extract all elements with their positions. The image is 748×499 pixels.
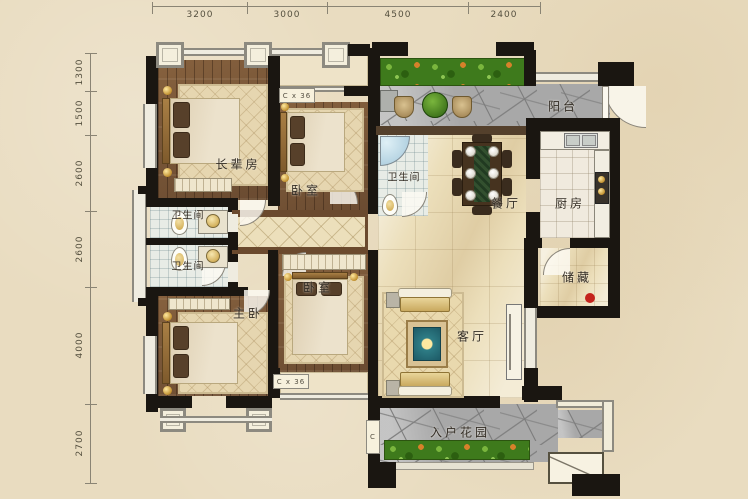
wall-segment	[572, 474, 620, 496]
dim-tick	[85, 135, 97, 136]
dim-tick	[247, 2, 248, 14]
wall-segment	[368, 250, 378, 398]
wall-segment	[368, 48, 380, 128]
room-label-storage: 储藏	[562, 269, 592, 286]
dim-label-top-4: 2400	[491, 10, 518, 20]
dim-label-left-5: 4000	[75, 332, 85, 359]
dim-tick	[85, 53, 97, 54]
room-label-elder: 长辈房	[215, 156, 260, 173]
bed-pillow	[173, 354, 189, 378]
side-shaft	[132, 190, 147, 302]
wall-segment	[148, 396, 192, 408]
wall-segment	[268, 56, 280, 206]
room-label-entry-garden: 入户花园	[430, 424, 490, 441]
bed-pillow	[173, 102, 190, 128]
room-label-balcony: 阳台	[548, 98, 578, 115]
dim-label-left-1: 1300	[75, 59, 85, 86]
wall-segment	[524, 306, 620, 318]
round-plant	[422, 92, 448, 118]
bedroom-mid-bay-window	[280, 393, 368, 400]
wall-segment	[146, 238, 232, 245]
room-label-dining: 餐厅	[491, 195, 521, 212]
room-label-bedroom-top: 卧室	[291, 182, 321, 199]
master-window	[143, 336, 157, 394]
balcony-rail	[536, 72, 602, 82]
wall-segment	[372, 42, 408, 56]
bed-headboard	[162, 98, 170, 164]
wall-segment	[268, 250, 278, 372]
coffee-table-glass	[413, 327, 441, 361]
dining-chair	[502, 178, 512, 196]
room-label-bath2: 卫生间	[172, 258, 205, 273]
planter-pot	[394, 96, 414, 118]
bed-pillow	[173, 132, 190, 158]
dim-tick	[85, 211, 97, 212]
bedside-lamp	[350, 273, 358, 281]
entry-garden-extension	[558, 410, 606, 438]
wall-segment	[598, 62, 634, 86]
dim-label-left-6: 2700	[75, 430, 85, 457]
bedside-lamp	[284, 273, 292, 281]
bath-door-gap	[228, 262, 238, 282]
bedside-lamp	[163, 386, 172, 395]
entry-garden-step	[374, 462, 534, 470]
bed-pillow	[290, 116, 305, 139]
bay-pillar	[322, 42, 350, 68]
plate	[488, 168, 499, 179]
balcony-planter	[380, 58, 526, 86]
wall-segment	[226, 396, 272, 408]
dim-tick	[327, 2, 328, 14]
wall-segment	[522, 386, 562, 400]
bedside-lamp	[163, 86, 172, 95]
sink	[206, 249, 220, 263]
dining-chair	[452, 150, 462, 168]
master-bay-window	[160, 416, 272, 423]
room-label-kitchen: 厨房	[555, 195, 585, 212]
bath3-sink	[382, 194, 398, 216]
dim-tick	[540, 2, 541, 14]
floor-plan-canvas: 3200 3000 4500 2400 1300 1500 2600 2600 …	[0, 0, 748, 499]
room-label-living: 客厅	[457, 328, 487, 345]
bay-window-tag-bottom: C x 36	[273, 374, 309, 389]
dim-tick	[85, 91, 97, 92]
bed-pillow	[290, 143, 305, 166]
room-label-bath1: 卫生间	[172, 207, 205, 222]
bedside-lamp	[281, 103, 289, 111]
dimension-line-top	[152, 6, 540, 7]
stove-burner	[598, 188, 605, 195]
room-label-master: 主卧	[233, 305, 263, 322]
sofa-back	[398, 386, 452, 396]
marker-dot	[585, 293, 595, 303]
sofa-seat	[400, 297, 450, 312]
master-closet	[168, 298, 230, 310]
dining-chair	[472, 206, 492, 215]
dim-label-left-2: 1500	[75, 100, 85, 127]
bed-pillow	[173, 326, 189, 350]
wall-segment	[608, 246, 620, 308]
kitchen-sink-basin	[566, 135, 580, 146]
tv-cabinet-line	[509, 314, 511, 370]
wall-segment	[138, 186, 156, 194]
wall-segment	[368, 462, 396, 488]
bed-headboard	[280, 112, 287, 172]
bay-window-tag-top: C x 36	[279, 88, 315, 103]
room-label-bedroom-mid: 卧室	[303, 279, 333, 296]
plate	[488, 146, 499, 157]
balcony-sill	[376, 126, 528, 135]
bay-pillar	[156, 42, 184, 68]
wall-segment	[524, 50, 536, 86]
wardrobe	[282, 254, 366, 270]
dim-label-left-3: 2600	[75, 160, 85, 187]
living-side-door	[524, 308, 537, 368]
dim-tick	[85, 404, 97, 405]
plate	[465, 190, 476, 201]
bedside-lamp	[163, 312, 172, 321]
wall-segment	[146, 287, 248, 296]
elder-room-window	[143, 104, 157, 168]
dim-tick	[468, 2, 469, 14]
wall-segment	[348, 44, 370, 56]
wall-segment	[524, 246, 538, 308]
bed-headboard	[162, 322, 170, 384]
dim-label-left-4: 2600	[75, 236, 85, 263]
bedside-lamp	[281, 174, 289, 182]
plate	[465, 146, 476, 157]
kitchen-sink-basin	[582, 135, 596, 146]
plate	[465, 168, 476, 179]
dim-label-top-3: 4500	[385, 10, 412, 20]
dim-label-top-1: 3200	[187, 10, 214, 20]
planter-pot	[452, 96, 472, 118]
dimension-line-left	[90, 53, 91, 483]
wall-segment	[344, 86, 368, 96]
wall-segment	[368, 128, 378, 214]
bedside-lamp	[163, 168, 172, 177]
dining-chair	[502, 150, 512, 168]
bath-door-gap	[228, 212, 238, 232]
wall-segment	[526, 118, 618, 131]
wall-segment	[138, 298, 156, 306]
dim-tick	[85, 287, 97, 288]
wall-segment	[526, 131, 540, 179]
dim-tick	[85, 483, 97, 484]
dresser	[174, 178, 232, 192]
entry-garden-planter	[384, 440, 530, 460]
stove-burner	[598, 176, 605, 183]
dim-label-top-2: 3000	[274, 10, 301, 20]
dining-chair	[452, 178, 462, 196]
sink	[206, 214, 220, 228]
meter-box: C	[366, 420, 380, 454]
garden-ext-wall	[602, 400, 614, 452]
sofa-seat	[400, 372, 450, 387]
dim-tick	[152, 2, 153, 14]
room-label-bath3: 卫生间	[388, 169, 421, 184]
